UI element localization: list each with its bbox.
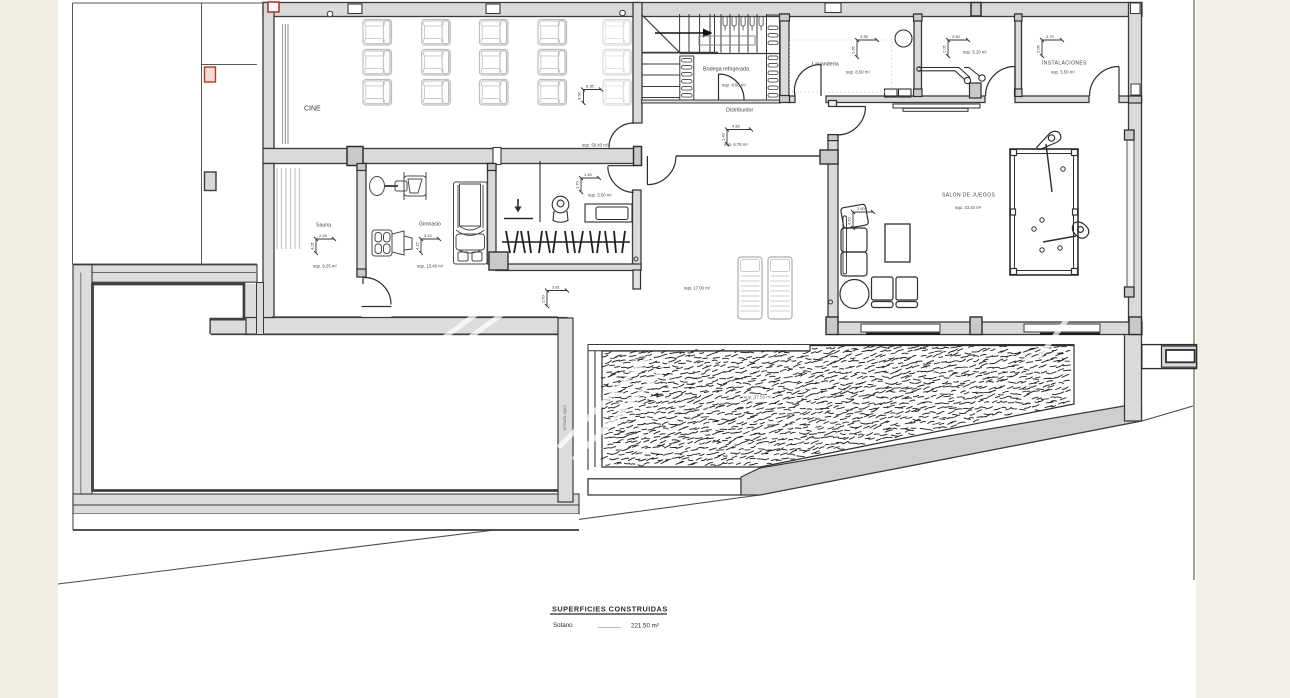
svg-text:4.83: 4.83 — [732, 124, 741, 129]
svg-text:Distribuidor: Distribuidor — [726, 108, 753, 114]
svg-text:sup. 8.50 m²: sup. 8.50 m² — [846, 70, 870, 75]
svg-text:3.35: 3.35 — [860, 34, 869, 39]
svg-text:1.50: 1.50 — [541, 294, 546, 303]
svg-text:sup. 4.60 m²: sup. 4.60 m² — [722, 83, 746, 88]
svg-text:2.05: 2.05 — [1036, 44, 1041, 53]
svg-text:4.15: 4.15 — [415, 241, 420, 250]
svg-text:sup. 9.25 m²: sup. 9.25 m² — [313, 264, 337, 269]
svg-text:Sauna: Sauna — [316, 223, 331, 229]
svg-text:4.50: 4.50 — [847, 216, 852, 225]
svg-text:sup. 43.40 m²: sup. 43.40 m² — [955, 205, 982, 210]
svg-text:Bodega refrigerada: Bodega refrigerada — [703, 67, 749, 73]
svg-text:221.50 m²: 221.50 m² — [631, 623, 659, 630]
svg-text:2.50: 2.50 — [952, 34, 961, 39]
svg-text:3.10: 3.10 — [424, 233, 433, 238]
svg-text:1.40: 1.40 — [584, 172, 593, 177]
svg-text:3.50: 3.50 — [577, 91, 582, 100]
svg-text:sup. 37.50 m²: sup. 37.50 m² — [744, 395, 772, 400]
svg-text:Sotano: Sotano — [553, 622, 573, 629]
svg-text:4.05: 4.05 — [310, 241, 315, 250]
svg-text:6.35: 6.35 — [586, 84, 595, 89]
svg-text:Lavanderia: Lavanderia — [812, 62, 839, 68]
svg-text:entrada agua: entrada agua — [562, 405, 567, 430]
svg-text:SALON DE JUEGOS: SALON DE JUEGOS — [942, 193, 995, 199]
svg-text:2.28: 2.28 — [319, 233, 328, 238]
svg-text:2.05: 2.05 — [942, 44, 947, 53]
svg-text:2.65: 2.65 — [851, 45, 856, 54]
svg-text:_______: _______ — [597, 623, 621, 629]
svg-text:sup. 50.40 m²: sup. 50.40 m² — [582, 143, 609, 148]
svg-text:sup. 5.50 m²: sup. 5.50 m² — [1051, 70, 1075, 75]
svg-text:sup. 5.50 m²: sup. 5.50 m² — [588, 193, 612, 198]
svg-text:sup. 5.10 m²: sup. 5.10 m² — [963, 50, 987, 55]
svg-text:SUPERFICIES CONSTRUIDAS: SUPERFICIES CONSTRUIDAS — [552, 605, 668, 614]
svg-text:3.81: 3.81 — [552, 285, 561, 290]
svg-text:1.40: 1.40 — [721, 132, 726, 141]
svg-text:1.70: 1.70 — [575, 180, 580, 189]
svg-text:sup. 17.00 m²: sup. 17.00 m² — [684, 286, 711, 291]
svg-text:2.70: 2.70 — [1046, 34, 1055, 39]
svg-text:Gimnasio: Gimnasio — [419, 222, 441, 228]
svg-text:2.60: 2.60 — [857, 206, 866, 211]
svg-text:INSTALACIONES: INSTALACIONES — [1042, 61, 1087, 67]
svg-text:CINE: CINE — [304, 106, 321, 113]
svg-text:sup. 13.46 m²: sup. 13.46 m² — [417, 264, 444, 269]
